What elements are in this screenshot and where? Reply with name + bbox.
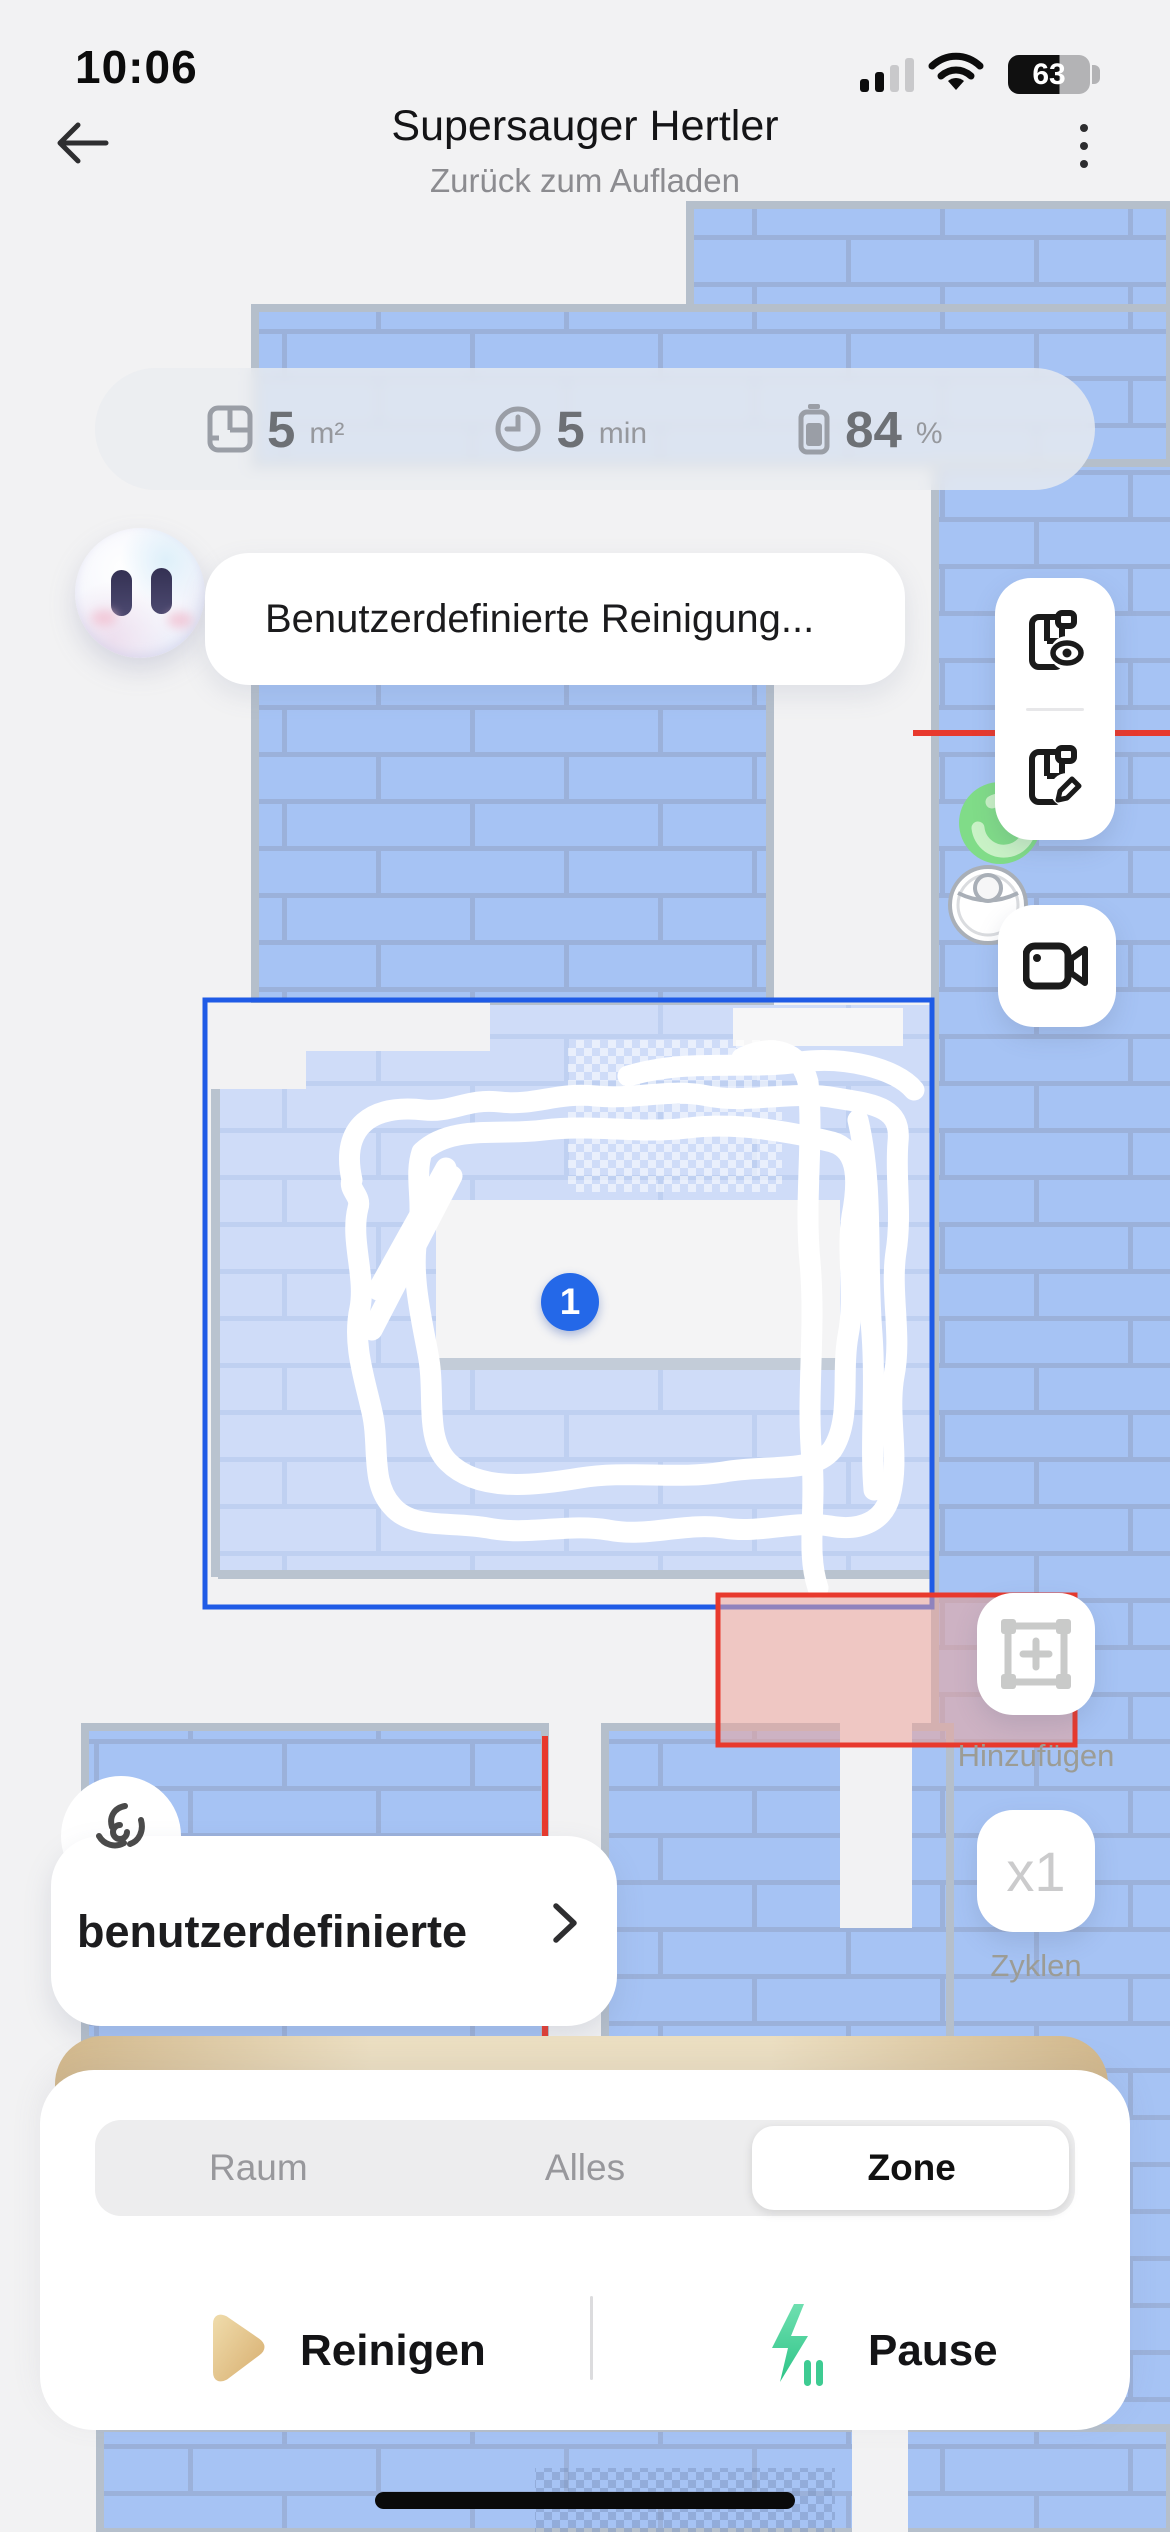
home-indicator[interactable]: [375, 2492, 795, 2509]
cleaning-stats-pill: 5 m² 5 min 84 %: [95, 368, 1095, 490]
map-tools-panel: [995, 578, 1115, 840]
map-door-gap: [852, 2424, 908, 2532]
map-view-button map-eye-icon[interactable]: [1022, 609, 1088, 675]
assistant-avatar[interactable]: [75, 528, 205, 658]
status-subtitle: Zurück zum Aufladen: [0, 162, 1170, 200]
clock-icon: [494, 405, 542, 453]
wifi-icon: [928, 52, 984, 94]
battery-icon: [797, 403, 831, 455]
assistant-message-bubble[interactable]: Benutzerdefinierte Reinigung...: [205, 553, 905, 685]
video-camera-icon: [1023, 941, 1091, 991]
app-screen: 10:06 63 Supersauger Hertler Zurück zum …: [0, 0, 1170, 2532]
cellular-signal-icon: [860, 58, 914, 92]
clean-button[interactable]: Reinigen: [300, 2326, 486, 2376]
tab-raum[interactable]: Raum: [95, 2120, 422, 2216]
pause-button[interactable]: Pause: [868, 2326, 998, 2376]
assistant-message: Benutzerdefinierte Reinigung...: [265, 597, 814, 642]
fan-icon: [89, 1798, 153, 1862]
more-menu-button[interactable]: [1062, 118, 1106, 174]
tab-alles[interactable]: Alles: [422, 2120, 749, 2216]
map-edit-button map-pencil-icon[interactable]: [1022, 744, 1088, 810]
action-divider: [590, 2296, 593, 2380]
chevron-right-icon: [548, 1900, 582, 1946]
cycles-value: x1: [1006, 1839, 1065, 1904]
map-obstacle-island: [436, 1200, 840, 1365]
add-zone-frame-icon: [1000, 1618, 1072, 1690]
status-time: 10:06: [75, 40, 198, 94]
room-number-badge[interactable]: 1: [541, 1273, 599, 1331]
cycles-button[interactable]: x1: [977, 1810, 1095, 1932]
cleaning-mode-tabs: Raum Alles Zone: [95, 2120, 1075, 2216]
tab-zone[interactable]: Zone: [748, 2120, 1075, 2216]
camera-button[interactable]: [998, 905, 1116, 1027]
add-zone-label: Hinzufügen: [906, 1738, 1166, 1774]
panel-divider: [1026, 708, 1084, 711]
battery-icon: 63: [1008, 55, 1090, 94]
cycles-label: Zyklen: [906, 1948, 1166, 1984]
avatar-eye: [111, 570, 132, 616]
clean-play-icon[interactable]: [207, 2314, 265, 2382]
mode-label: benutzerdefinierte: [77, 1906, 467, 1958]
avatar-eye: [151, 568, 172, 614]
suction-mode-button[interactable]: benutzerdefinierte: [51, 1776, 617, 2026]
battery-nub: [1092, 65, 1100, 84]
pause-lightning-icon[interactable]: [764, 2302, 828, 2394]
stat-battery: 84 %: [797, 400, 942, 459]
page-title: Supersauger Hertler: [0, 102, 1170, 151]
stat-time: 5 min: [494, 400, 647, 459]
floor-area-icon: [207, 405, 253, 453]
map-door-gap: [840, 1723, 912, 1928]
stat-area: 5 m²: [207, 400, 344, 459]
avatar-blush: [91, 610, 117, 626]
avatar-blush: [167, 612, 193, 628]
add-zone-button[interactable]: [977, 1593, 1095, 1715]
